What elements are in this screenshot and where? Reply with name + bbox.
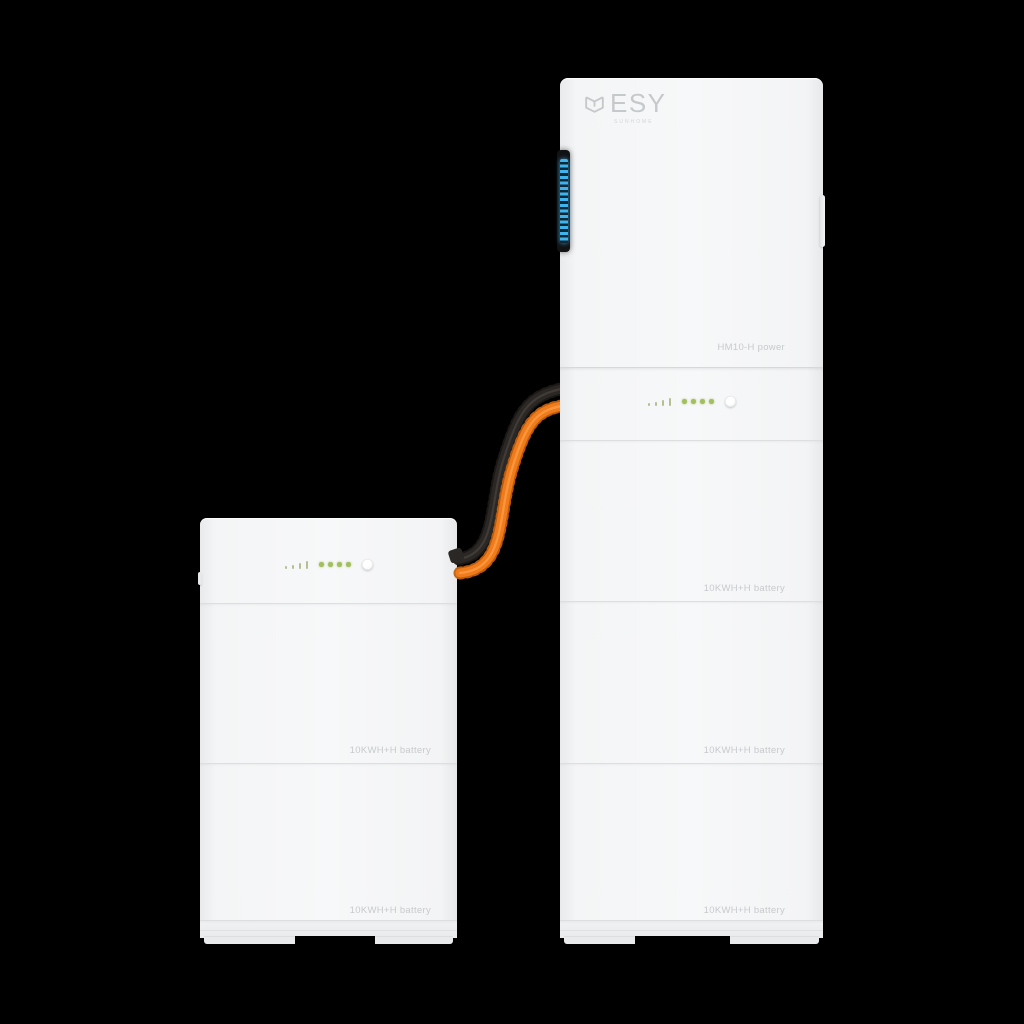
brand-logo: ESY SUNHOME xyxy=(582,90,667,125)
battery-module-label: 10KWH+H battery xyxy=(704,905,785,916)
side-unit-indicator-panel xyxy=(200,518,457,603)
base-notch xyxy=(635,936,730,944)
side-battery-unit: 10KWH+H battery 10KWH+H battery xyxy=(200,518,457,937)
base-notch xyxy=(295,936,375,944)
power-button xyxy=(362,559,373,570)
side-handle-tab xyxy=(198,572,202,585)
dark-cable xyxy=(447,388,566,564)
tower-battery-module-1: 10KWH+H battery xyxy=(560,440,823,602)
esy-logo-icon xyxy=(582,91,607,116)
side-unit-indicator-row xyxy=(200,559,457,570)
battery-module-label: 10KWH+H battery xyxy=(350,745,431,756)
status-led-strip xyxy=(557,150,570,252)
brand-logo-text: ESY xyxy=(610,90,667,116)
product-scene: 10KWH+H battery 10KWH+H battery xyxy=(0,0,1024,1024)
status-led-dots xyxy=(319,562,351,567)
side-handle xyxy=(820,195,825,247)
battery-module-label: 10KWH+H battery xyxy=(350,905,431,916)
signal-bars-icon xyxy=(648,398,672,406)
side-battery-module-2: 10KWH+H battery xyxy=(200,763,457,921)
tower-indicator-row xyxy=(560,396,823,407)
battery-module-label: 10KWH+H battery xyxy=(704,745,785,756)
battery-module-label: 10KWH+H battery xyxy=(704,583,785,594)
side-battery-module-1: 10KWH+H battery xyxy=(200,603,457,764)
power-module-label: HM10-H power xyxy=(718,342,785,353)
brand-logo-subtext: SUNHOME xyxy=(614,119,667,125)
tower-battery-module-2: 10KWH+H battery xyxy=(560,601,823,764)
interconnect-cables xyxy=(0,0,1024,1024)
led-strip-segments xyxy=(560,159,568,243)
side-unit-feet xyxy=(204,936,453,944)
power-module: ESY SUNHOME HM10-H power xyxy=(560,78,823,367)
tower-battery-module-3: 10KWH+H battery xyxy=(560,763,823,921)
tower-indicator-panel xyxy=(560,367,823,441)
orange-cable xyxy=(460,405,568,573)
status-led-dots xyxy=(682,399,714,404)
power-button xyxy=(725,396,736,407)
power-tower-unit: ESY SUNHOME HM10-H power 10KWH+H battery… xyxy=(560,78,823,937)
tower-feet xyxy=(564,936,819,944)
signal-bars-icon xyxy=(285,561,309,569)
